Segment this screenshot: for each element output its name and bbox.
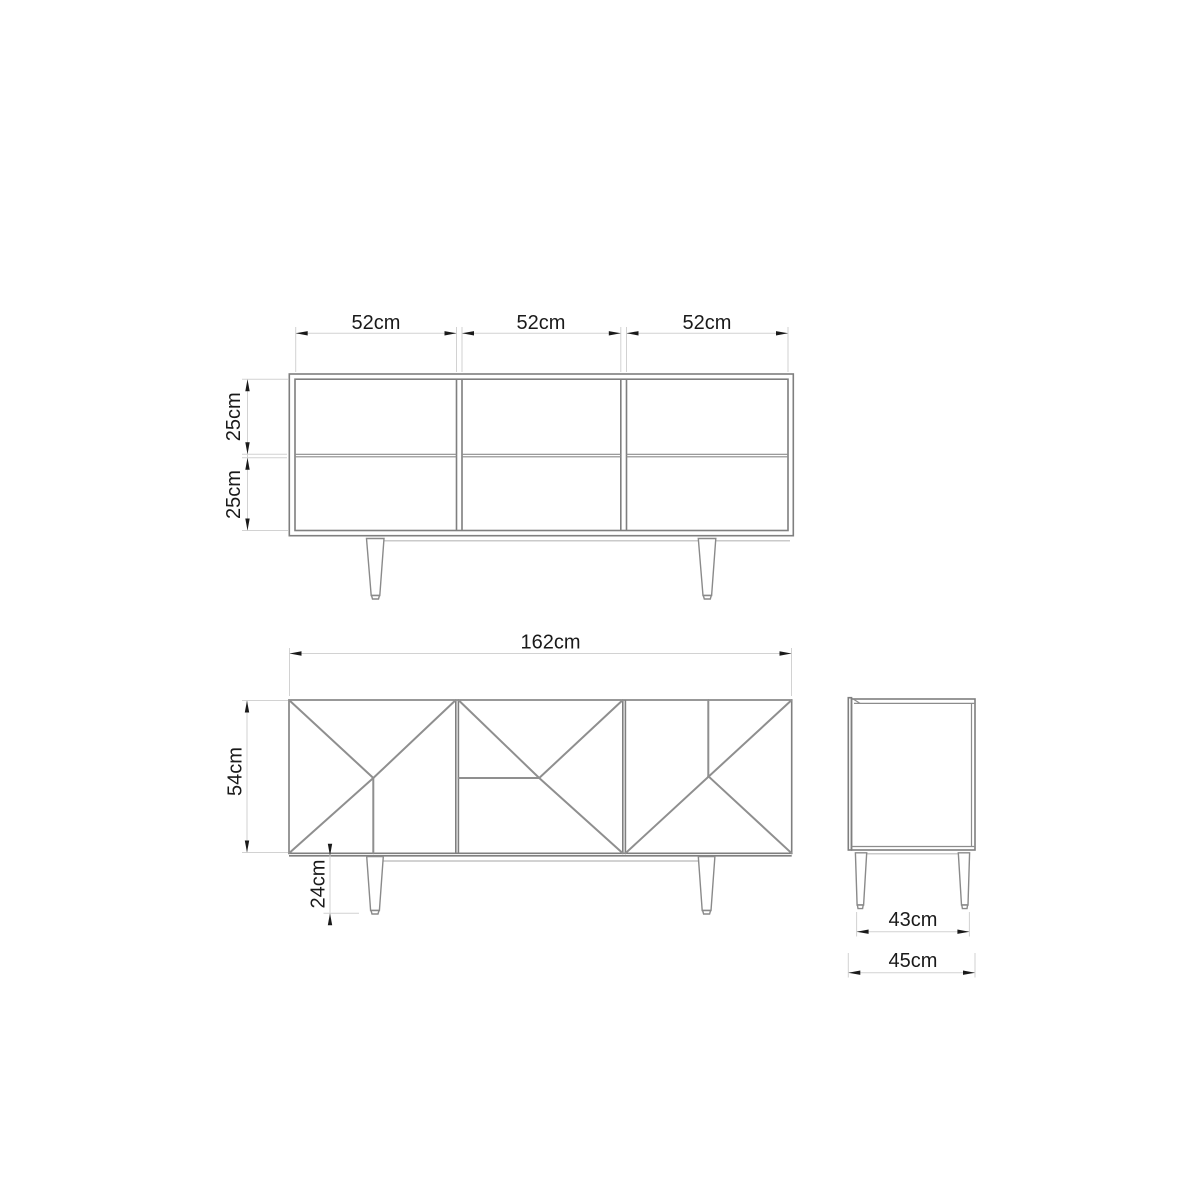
right-leg bbox=[698, 857, 715, 911]
right-leg-foot bbox=[703, 911, 711, 915]
left-leg-foot bbox=[371, 911, 379, 915]
dim-compartment-widths: 52cm 52cm 52cm bbox=[296, 312, 788, 372]
door-pattern-middle bbox=[458, 700, 622, 853]
side-view-body bbox=[848, 698, 975, 909]
dim-extension-lines bbox=[242, 379, 288, 530]
front-view-legs bbox=[367, 857, 715, 915]
dim-body-height: 54cm bbox=[225, 701, 289, 853]
drawing-page: 52cm 52cm 52cm 25cm 25cm bbox=[0, 0, 1200, 1200]
top-view-carcass bbox=[289, 374, 793, 599]
top-view-legs bbox=[367, 539, 716, 600]
dim-label-compartment-1: 52cm bbox=[352, 312, 401, 334]
side-view: 43cm 45cm bbox=[848, 698, 975, 978]
top-view: 52cm 52cm 52cm 25cm 25cm bbox=[223, 312, 793, 599]
right-leg bbox=[698, 539, 716, 596]
dim-shelf-heights: 25cm 25cm bbox=[223, 379, 288, 530]
technical-drawing-canvas: 52cm 52cm 52cm 25cm 25cm bbox=[0, 0, 1200, 1200]
front-view-body bbox=[289, 700, 792, 914]
dim-leg-span: 43cm bbox=[857, 909, 970, 937]
right-leg-foot bbox=[703, 596, 711, 600]
carcass-shelves bbox=[295, 454, 788, 457]
dim-label-compartment-3: 52cm bbox=[683, 312, 732, 334]
back-leg-foot bbox=[962, 905, 968, 909]
front-view: 162cm 54cm 24cm bbox=[225, 632, 792, 926]
left-leg bbox=[367, 857, 384, 911]
front-leg bbox=[855, 853, 866, 905]
dim-depth: 45cm bbox=[848, 950, 975, 978]
door-pattern-right bbox=[625, 700, 791, 853]
dim-label-depth: 45cm bbox=[889, 950, 938, 972]
dim-label-shelf-2: 25cm bbox=[223, 470, 245, 519]
door-pattern-left bbox=[289, 700, 456, 853]
dim-overall-width: 162cm bbox=[290, 632, 792, 697]
left-leg bbox=[367, 539, 385, 596]
dim-label-body-height: 54cm bbox=[225, 747, 247, 796]
back-leg bbox=[958, 853, 969, 905]
dim-label-compartment-2: 52cm bbox=[517, 312, 566, 334]
front-leg-foot bbox=[857, 905, 863, 909]
side-view-legs bbox=[855, 853, 969, 909]
side-outer-box bbox=[852, 699, 976, 850]
dim-label-overall-width: 162cm bbox=[520, 632, 580, 654]
dim-label-leg-span: 43cm bbox=[889, 909, 938, 931]
dim-label-shelf-1: 25cm bbox=[223, 392, 245, 441]
dim-label-leg-height: 24cm bbox=[308, 860, 330, 909]
left-leg-foot bbox=[372, 596, 380, 600]
